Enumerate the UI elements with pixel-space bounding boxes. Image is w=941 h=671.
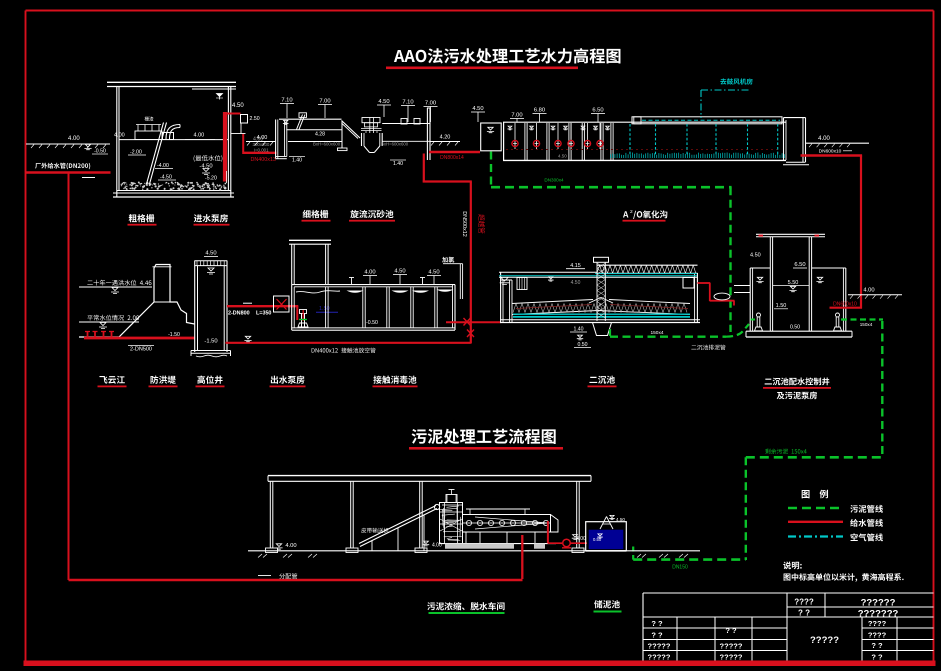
svg-text:-2.00: -2.00 <box>130 150 142 156</box>
svg-text:1.40: 1.40 <box>393 161 403 167</box>
svg-text:4.00: 4.00 <box>818 136 830 142</box>
svg-text:-1.50: -1.50 <box>168 332 180 338</box>
svg-text:L=350: L=350 <box>256 311 271 317</box>
svg-text:-5.20: -5.20 <box>205 176 217 182</box>
svg-text:DN600x10: DN600x10 <box>819 149 842 155</box>
svg-text:-4.00: -4.00 <box>157 163 169 169</box>
svg-text:????: ???? <box>794 598 814 607</box>
svg-text:栅渣: 栅渣 <box>145 116 154 123</box>
svg-text:-0.50: -0.50 <box>366 320 378 326</box>
svg-text:???????: ??????? <box>858 609 899 620</box>
svg-text:超越管: 超越管 <box>478 214 487 234</box>
svg-text:4.50: 4.50 <box>428 270 439 276</box>
svg-text:4.50: 4.50 <box>205 251 216 257</box>
svg-text:4.50: 4.50 <box>616 517 625 522</box>
svg-text:2: 2 <box>630 209 633 215</box>
svg-text:? ?: ? ? <box>871 641 883 650</box>
svg-text:-4.50: -4.50 <box>160 175 172 181</box>
svg-text:DN800x14: DN800x14 <box>440 155 464 161</box>
svg-text:2-DN500: 2-DN500 <box>130 347 152 353</box>
svg-text:? ?: ? ? <box>651 619 663 628</box>
svg-text:4.00: 4.00 <box>114 133 125 139</box>
svg-text:4.50: 4.50 <box>232 103 244 109</box>
svg-text:4.50: 4.50 <box>750 253 761 259</box>
svg-text:4.00: 4.00 <box>364 270 375 276</box>
svg-text:150x4: 150x4 <box>860 322 873 327</box>
svg-text:? ?: ? ? <box>651 631 663 640</box>
svg-text:4.50: 4.50 <box>558 154 567 159</box>
svg-text:4.00: 4.00 <box>194 133 205 139</box>
svg-text:4.15: 4.15 <box>570 263 581 269</box>
svg-text:DN600x10: DN600x10 <box>833 301 857 307</box>
svg-text:4.28: 4.28 <box>315 132 325 138</box>
svg-text:150x4: 150x4 <box>650 330 663 336</box>
svg-text:7.00: 7.00 <box>425 101 436 107</box>
svg-text:7.10: 7.10 <box>402 100 413 106</box>
svg-text:BxH=600x600: BxH=600x600 <box>381 142 409 147</box>
svg-text:i=0.001: i=0.001 <box>254 148 269 153</box>
svg-text:? ?: ? ? <box>798 609 810 618</box>
svg-text:6.50: 6.50 <box>794 262 805 268</box>
svg-text:1.50: 1.50 <box>776 303 787 309</box>
svg-text:2-DN800: 2-DN800 <box>228 311 250 317</box>
svg-text:1.40: 1.40 <box>292 158 302 164</box>
svg-text:?????: ????? <box>720 642 743 651</box>
svg-text:?????: ????? <box>810 635 839 646</box>
svg-text:7.00: 7.00 <box>511 113 522 119</box>
svg-text:?????: ????? <box>648 642 671 651</box>
svg-text:4.00: 4.00 <box>68 136 80 142</box>
svg-text:6.50: 6.50 <box>592 108 603 114</box>
svg-text:4.50: 4.50 <box>378 99 389 105</box>
svg-text:7.00: 7.00 <box>319 99 330 105</box>
svg-text:4.50: 4.50 <box>571 280 581 286</box>
svg-text:?????: ????? <box>648 653 671 662</box>
svg-text:7.10: 7.10 <box>281 98 292 104</box>
svg-text:4.50: 4.50 <box>394 269 405 275</box>
svg-text:6.80: 6.80 <box>534 108 545 114</box>
svg-text:2.50: 2.50 <box>250 116 260 122</box>
svg-text:4.50: 4.50 <box>472 106 483 112</box>
svg-text:5.50: 5.50 <box>788 280 799 286</box>
svg-text:1.40: 1.40 <box>573 327 583 333</box>
svg-text:4.00: 4.00 <box>285 543 296 549</box>
svg-text:4.00: 4.00 <box>576 536 586 542</box>
svg-text:-0.50: -0.50 <box>94 149 106 155</box>
svg-text:DN300x4: DN300x4 <box>544 178 564 183</box>
svg-text:?????: ????? <box>720 653 743 662</box>
svg-text:BxH=600x600: BxH=600x600 <box>313 142 341 147</box>
svg-text:DN400x13: DN400x13 <box>251 157 276 163</box>
svg-text:4.20: 4.20 <box>440 135 451 141</box>
svg-text:? ?: ? ? <box>871 653 883 662</box>
svg-text:DN500x12: DN500x12 <box>461 211 467 236</box>
svg-text:? ?: ? ? <box>725 626 737 635</box>
svg-text:0.50: 0.50 <box>577 342 587 348</box>
svg-text:????: ???? <box>868 619 887 628</box>
svg-text:-1.50: -1.50 <box>204 339 217 345</box>
svg-text:4.00: 4.00 <box>863 288 874 294</box>
svg-text:0.50: 0.50 <box>790 325 800 331</box>
svg-text:4.00: 4.00 <box>257 135 268 141</box>
svg-text:??????: ?????? <box>861 598 896 609</box>
svg-text:300x300: 300x300 <box>253 142 270 147</box>
svg-text:DN150: DN150 <box>672 565 688 571</box>
svg-text:????: ???? <box>868 631 887 640</box>
